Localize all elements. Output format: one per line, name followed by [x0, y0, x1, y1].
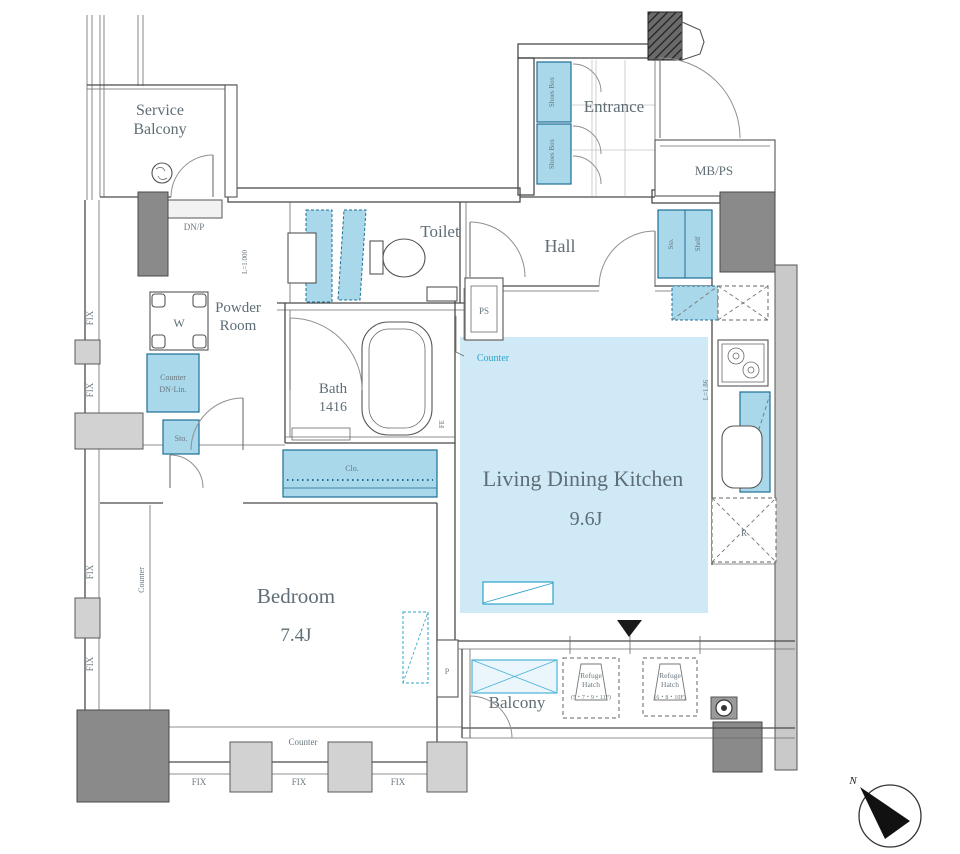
bath-step — [292, 428, 350, 440]
dn-p-box — [168, 200, 222, 218]
toilet-bowl — [383, 239, 425, 277]
bath-door-arc — [290, 318, 362, 390]
shoes-box-label: Shoes Box — [548, 76, 556, 107]
pillar — [230, 742, 272, 792]
entrance-label: Entrance — [584, 97, 644, 116]
service-balcony-door-arc — [171, 155, 213, 197]
counter-dn-lin — [147, 354, 199, 412]
hall-label: Hall — [545, 236, 576, 256]
closet: Clo. — [283, 450, 437, 497]
bedroom-label: Bedroom — [257, 584, 335, 608]
bathtub — [362, 322, 432, 435]
west-wall: FIX FIX FIX FIX — [75, 192, 168, 712]
pillar — [138, 192, 168, 276]
refuge-1-label-3: (5・7・9・11F) — [571, 694, 611, 701]
fe-label: FE — [438, 420, 446, 428]
toilet-tank — [370, 241, 383, 274]
toilet-door-arc — [470, 222, 525, 277]
entrance-north-wall — [518, 44, 654, 58]
pillar — [328, 742, 372, 792]
counter-dn-label-2: DN·Lin. — [159, 385, 186, 394]
corner-chamfer — [682, 22, 704, 60]
ldk-label: Living Dining Kitchen — [483, 466, 683, 491]
bedroom-size-label: 7.4J — [280, 625, 311, 646]
corner-column-dark — [648, 12, 682, 60]
stove — [718, 340, 768, 386]
entrance-west-wall — [518, 58, 534, 195]
service-balcony-label-1: Service — [136, 102, 184, 119]
mb-ps: MB/PS — [655, 140, 775, 196]
south-wall: Counter FIX FIX FIX — [77, 710, 467, 802]
ps-label: PS — [479, 306, 489, 316]
fix-window-label: FIX — [85, 310, 95, 325]
east-exterior-wall — [775, 265, 797, 770]
north-arrow-icon — [860, 787, 910, 839]
ldk-size-label: 9.6J — [570, 508, 603, 530]
toilet-cabinet — [288, 233, 316, 283]
powder-room: Powder Room W Counter DN·Lin. Sto. — [147, 292, 261, 488]
hall-door-arc — [599, 231, 655, 287]
fix-window-label: FIX — [85, 564, 95, 579]
pillar — [427, 742, 467, 792]
closet-box — [283, 450, 437, 497]
bath-label: Bath — [319, 381, 348, 397]
floor-plan-page: Service Balcony DN/P FIX FIX FIX FIX Sho… — [0, 0, 960, 854]
powder-room-label-1: Powder — [215, 300, 261, 316]
left-counter-label: Counter — [137, 567, 146, 593]
entrance-door-arc — [660, 58, 740, 138]
balcony-label: Balcony — [489, 693, 546, 712]
pillar — [75, 598, 100, 638]
refuge-2-label-1: Refuge — [659, 671, 681, 680]
fix-window-label: FIX — [85, 656, 95, 671]
refuge-1-label-1: Refuge — [580, 671, 602, 680]
shelf-label: Shelf — [694, 236, 702, 251]
bath-room: Bath 1416 FE — [290, 318, 446, 440]
washer-label: W — [173, 316, 185, 330]
toilet-dimension: L=1.000 — [241, 250, 249, 274]
counter-dn-label-1: Counter — [160, 373, 186, 382]
sto-label: Sto. — [667, 238, 675, 249]
north-wall-hatched — [228, 188, 520, 202]
refuge-2-label-3: (6・8・10F) — [654, 694, 685, 701]
north-label: N — [848, 775, 857, 787]
exhaust-fan-icon — [152, 163, 172, 183]
mb-ps-label: MB/PS — [695, 163, 733, 178]
pipe-label: P — [445, 667, 450, 676]
refuge-2-label-2: Hatch — [661, 680, 679, 689]
fix-window-label: FIX — [85, 382, 95, 397]
powder-room-label-2: Room — [220, 318, 257, 334]
bedroom: Bedroom 7.4J Counter P — [137, 567, 458, 697]
kitchen-dimension: L=1.86 — [702, 379, 710, 400]
kitchen-counter-label: Counter — [477, 353, 510, 364]
balcony-side-wall — [225, 85, 237, 197]
sink — [722, 426, 762, 488]
toilet-label: Toilet — [420, 222, 460, 241]
bath-size-label: 1416 — [319, 400, 347, 415]
wall-vent — [427, 287, 457, 301]
compass: N — [848, 775, 921, 847]
pillar — [720, 192, 775, 272]
fix-window-label: FIX — [391, 777, 406, 787]
pillar — [75, 340, 100, 364]
refrigerator-label: R — [741, 528, 747, 538]
pillar — [75, 413, 143, 449]
pillar — [713, 722, 762, 772]
service-balcony-label-2: Balcony — [133, 121, 186, 138]
refuge-1-label-2: Hatch — [582, 680, 600, 689]
floor-plan-drawing: Service Balcony DN/P FIX FIX FIX FIX Sho… — [0, 0, 960, 854]
storage-label: Sto. — [175, 434, 188, 443]
direction-marker — [617, 620, 642, 637]
fix-window-label: FIX — [292, 777, 307, 787]
fix-window-label: FIX — [192, 777, 207, 787]
bottom-counter-label: Counter — [289, 737, 318, 747]
exterior-walls — [228, 12, 720, 203]
closet-label: Clo. — [345, 464, 359, 473]
pillar — [77, 710, 169, 802]
shoes-box-label: Shoes Box — [548, 138, 556, 169]
toilet-sliding-door — [338, 210, 366, 300]
dn-p-label: DN/P — [184, 222, 205, 232]
bedroom-door-arc — [170, 455, 203, 488]
